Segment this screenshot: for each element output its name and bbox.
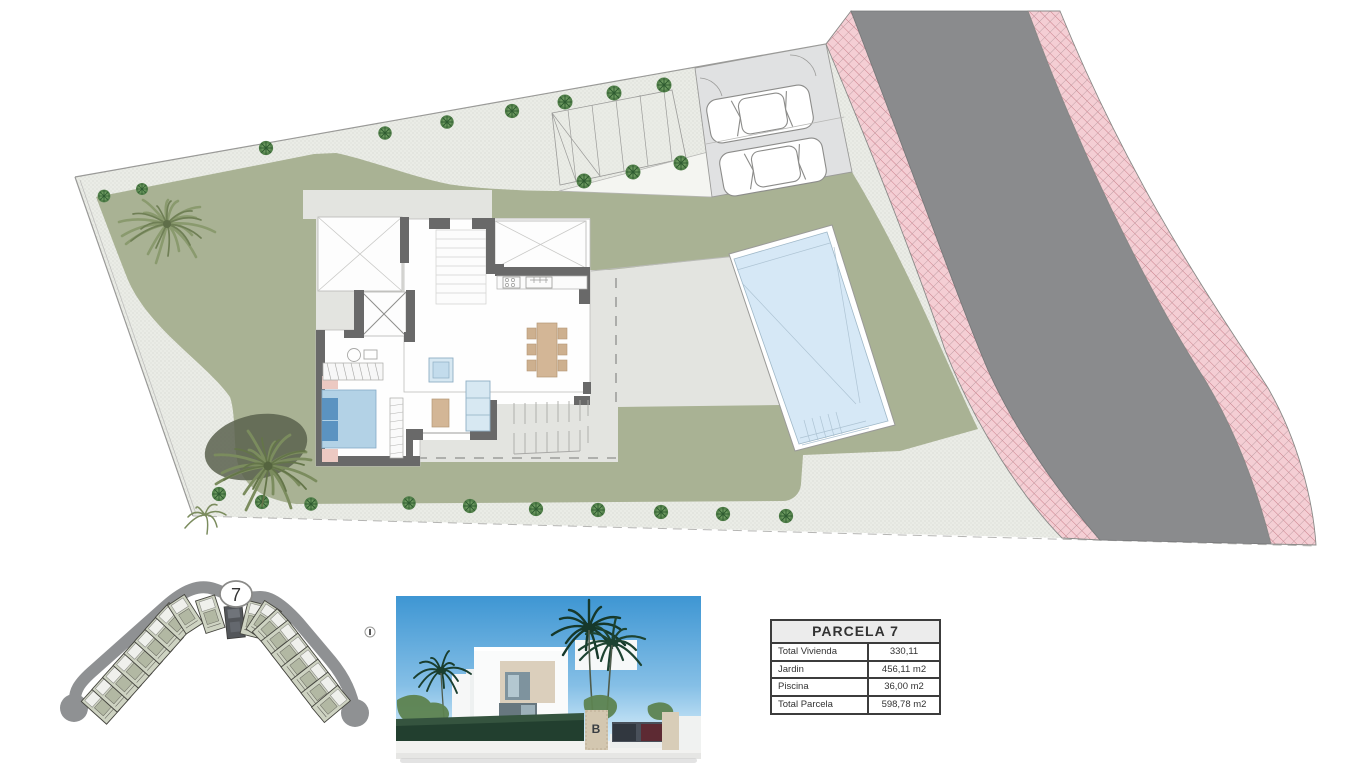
svg-text:7: 7 — [231, 585, 241, 605]
svg-text:B: B — [592, 722, 601, 736]
